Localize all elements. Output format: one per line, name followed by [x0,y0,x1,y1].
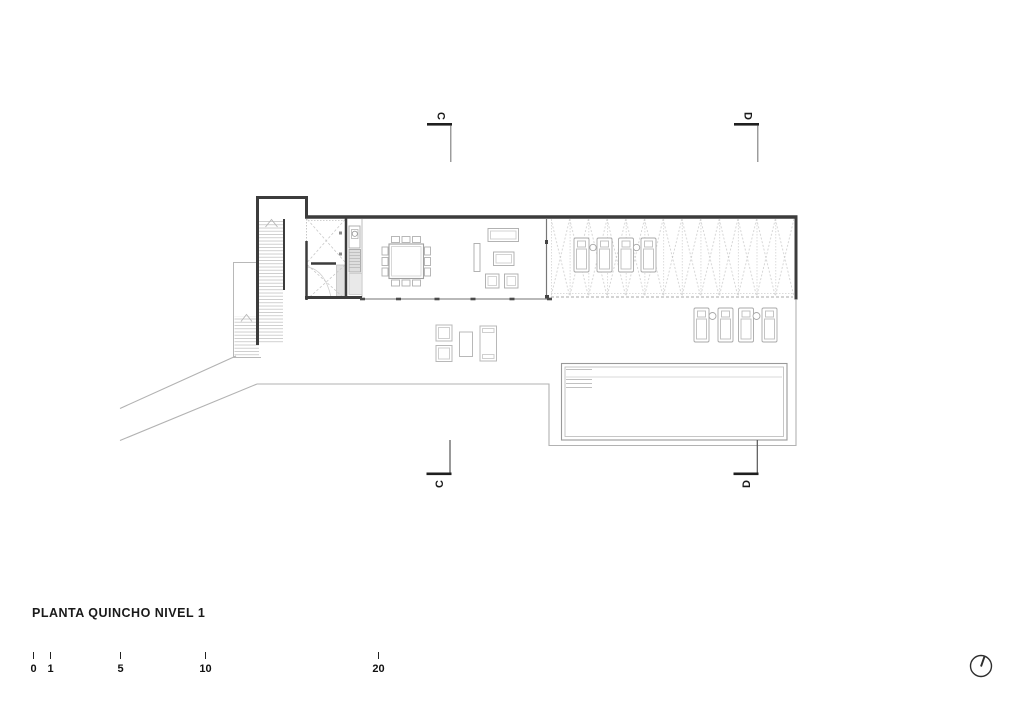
coffee-table [494,252,515,266]
side-table [633,244,639,250]
sun-lounger [574,238,589,272]
section-marker-c-bottom: C [427,440,452,488]
svg-text:D: D [742,112,754,120]
dining-table [389,244,424,279]
sun-lounger [718,308,733,342]
sideboard [474,244,480,272]
section-marker-d-bottom: D [734,440,759,488]
living-area [474,229,519,289]
bathroom-with-tile-hatch [307,219,346,299]
drawing-title: PLANTA QUINCHO NIVEL 1 [32,606,205,620]
sun-lounger [694,308,709,342]
side-table [753,313,760,320]
section-marker-c-top: C [427,112,452,162]
outdoor-table [460,332,473,357]
ramp-edge-lower [120,384,257,441]
side-table [590,244,596,250]
section-marker-d-top: D [734,112,759,162]
svg-text:C: C [435,112,447,120]
terrace-furniture [436,325,497,362]
cabinet [337,265,346,298]
grill-counter-strip [349,219,362,297]
swimming-pool [562,364,788,441]
svg-text:C: C [434,480,446,488]
sun-lounger [762,308,777,342]
drawing-sheet: C D C D PLANTA QUINCHO NIVEL [0,0,1024,724]
grill-hatch [349,250,361,273]
dining-set [382,237,431,287]
main-stair [259,219,284,344]
sofa [488,229,519,242]
sun-loungers-pool [694,308,777,342]
sun-lounger [641,238,656,272]
svg-text:D: D [741,480,753,488]
sun-lounger [597,238,612,272]
sun-lounger [739,308,754,342]
ramp-edge-upper [120,356,236,409]
counter [349,274,362,295]
section-markers: C D C D [427,112,760,488]
pool-steps [566,370,592,388]
side-table [709,313,716,320]
door-swing-arc [308,267,332,297]
north-clock-icon [971,656,992,677]
sun-lounger [619,238,634,272]
